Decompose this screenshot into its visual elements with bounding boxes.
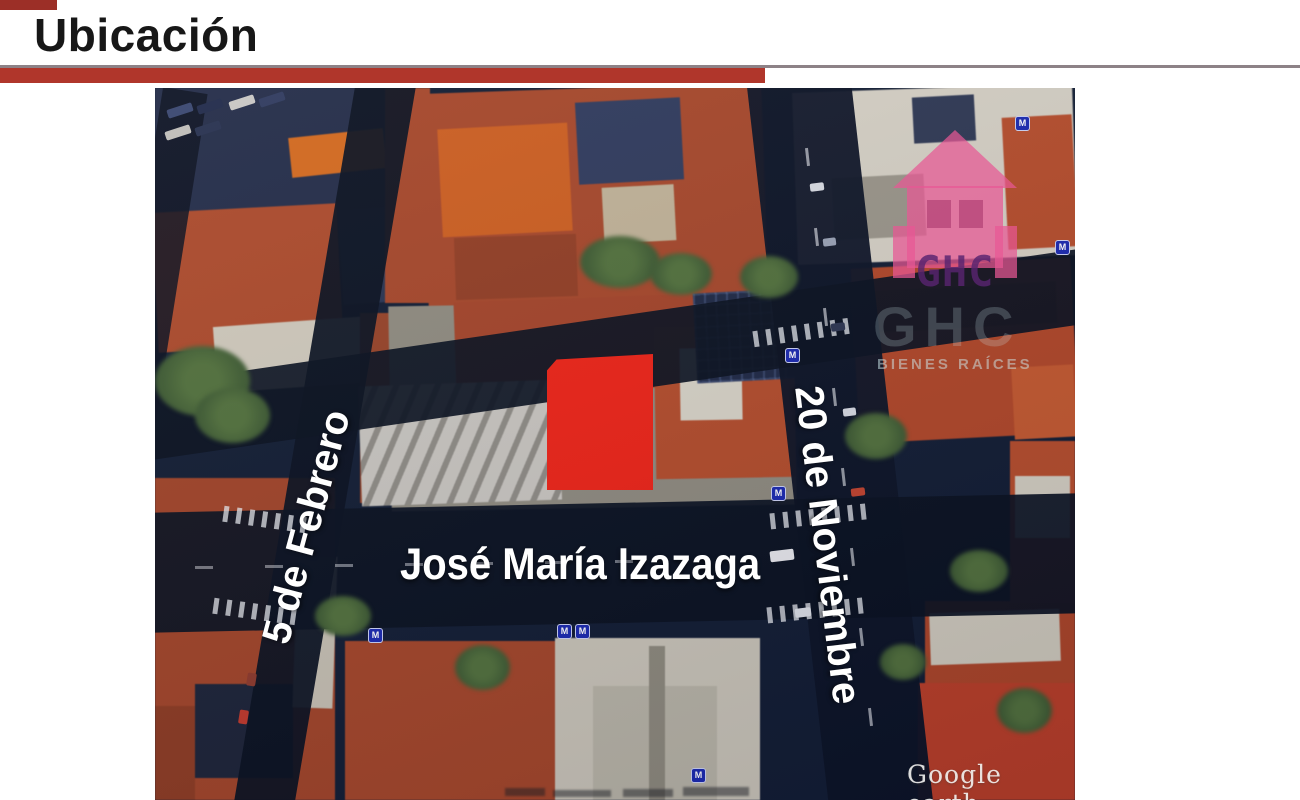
slide: { "slide": { "title": "Ubicación" }, "ma…: [0, 0, 1300, 800]
page-title: Ubicación: [34, 8, 258, 62]
street-label-jose-maria-izazaga: José María Izazaga: [400, 540, 760, 590]
title-underline-thick: [0, 68, 765, 83]
street-label-20-de-noviembre: 20 de Noviembre: [785, 383, 869, 706]
aerial-map-image: MMMMMMMM GHC GHC BIENES RAÍCES 5 de Febr…: [155, 88, 1075, 800]
street-label-5-de-febrero: 5 de Febrero: [254, 405, 360, 649]
google-earth-watermark: Google earth: [907, 760, 1075, 800]
street-labels-layer: 5 de Febrero José María Izazaga 20 de No…: [155, 88, 1075, 800]
